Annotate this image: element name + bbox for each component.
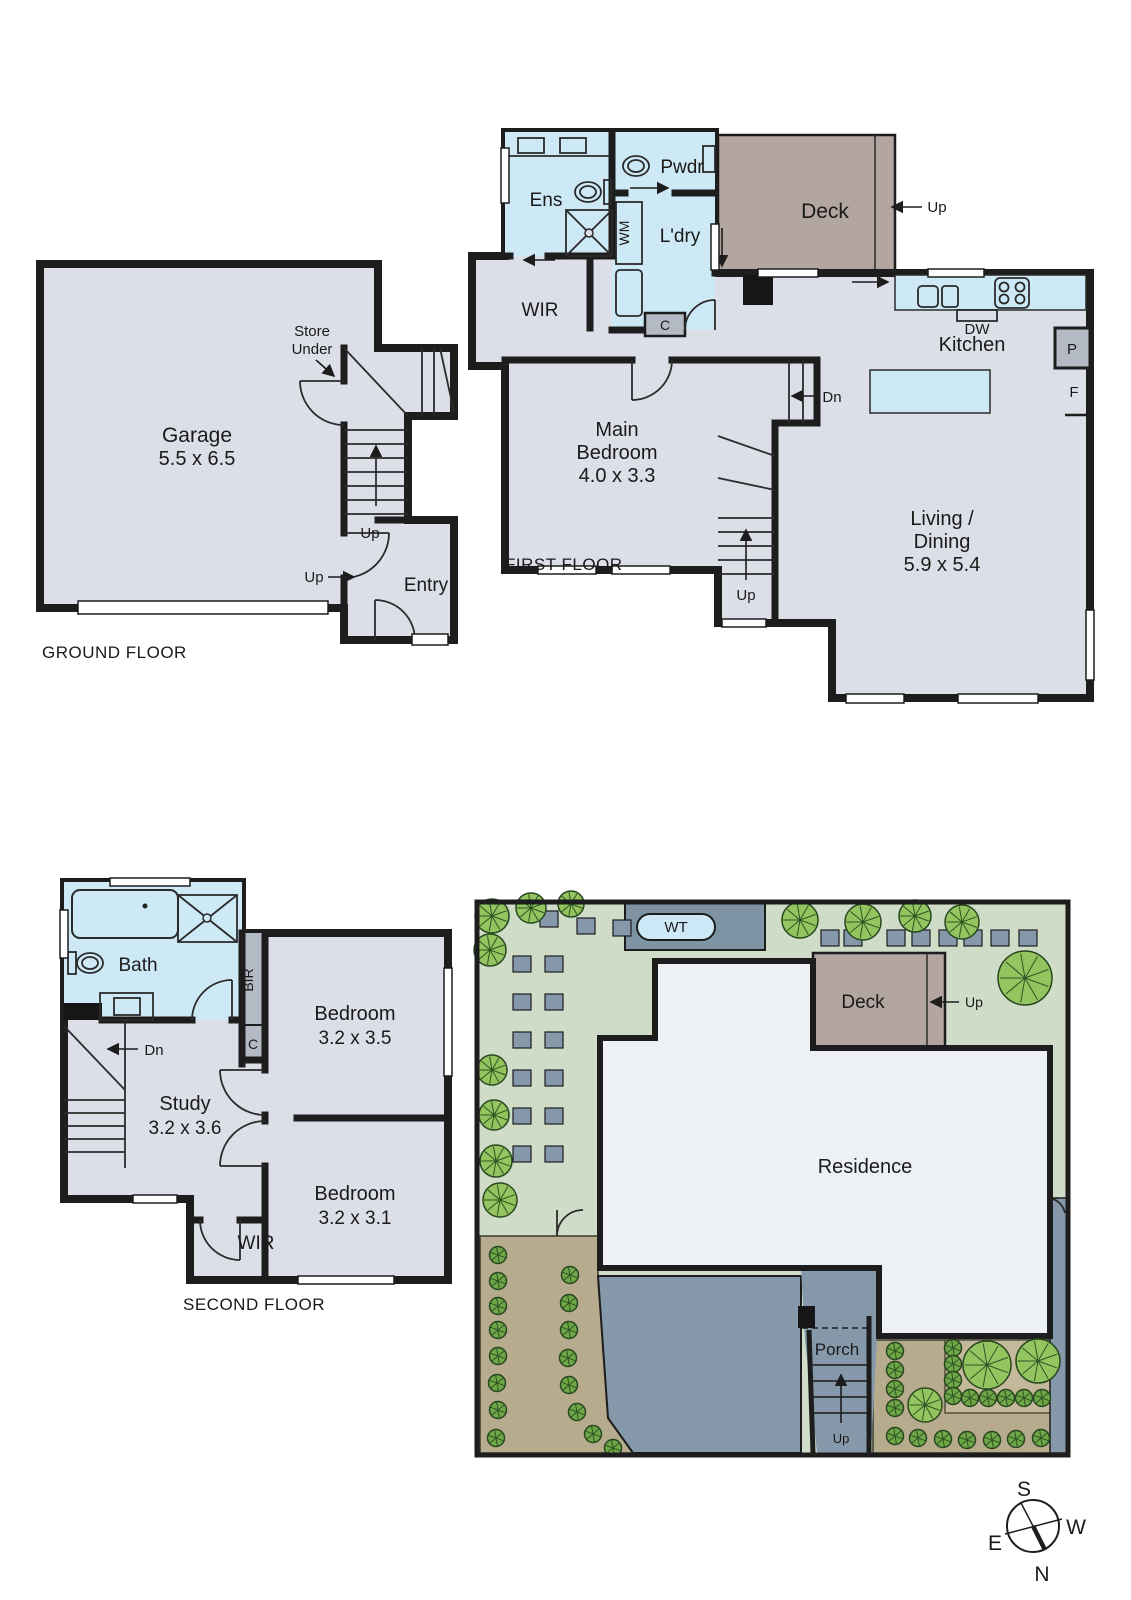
kitchen-bench xyxy=(895,275,1086,310)
bedroom1-label: Bedroom xyxy=(314,1003,395,1025)
porch-up-label: Up xyxy=(833,1431,850,1446)
dw-label: DW xyxy=(965,321,991,338)
bath-window-top xyxy=(110,878,190,886)
living-window-3 xyxy=(958,694,1038,703)
living-line1: Living / xyxy=(910,508,974,530)
main-bedroom-line2: Bedroom xyxy=(576,442,657,464)
wm-label: WM xyxy=(616,221,632,246)
compass-needle-north xyxy=(1033,1526,1045,1550)
porch-label: Porch xyxy=(815,1340,859,1359)
second-dn-label: Dn xyxy=(144,1042,163,1059)
ground-floor-plan: Garage 5.5 x 6.5 Store Under Up Up Entry… xyxy=(30,248,460,668)
ground-floor-title: GROUND FLOOR xyxy=(42,643,187,662)
second-floor-title: SECOND FLOOR xyxy=(183,1295,325,1314)
garage-dims: 5.5 x 6.5 xyxy=(159,448,236,470)
first-floor-title: FIRST FLOOR xyxy=(505,555,623,574)
bedroom1-dims: 3.2 x 3.5 xyxy=(319,1028,392,1049)
second-wall-block xyxy=(64,1003,102,1020)
compass-north: N xyxy=(1034,1563,1049,1586)
first-cupboard-label: C xyxy=(660,317,670,333)
garage-door xyxy=(78,601,328,614)
site-deck-label: Deck xyxy=(841,992,885,1013)
first-deck-up-label: Up xyxy=(927,199,946,216)
living-dims: 5.9 x 5.4 xyxy=(904,554,981,576)
compass-needle-south xyxy=(1021,1503,1033,1526)
living-window-1 xyxy=(722,619,766,627)
second-floor-plan: Bath BIR C Dn Bedroom 3.2 x 3.5 Study 3.… xyxy=(50,868,470,1328)
ground-floor-footprint xyxy=(40,264,454,640)
second-cupboard-label: C xyxy=(248,1036,258,1052)
site-deck-up-label: Up xyxy=(965,994,983,1010)
compass-south: S xyxy=(1017,1478,1031,1501)
first-dn-label: Dn xyxy=(822,389,841,406)
compass-east: E xyxy=(988,1532,1002,1555)
store-under-line2: Under xyxy=(292,341,333,358)
second-wir-label: WIR xyxy=(238,1233,275,1254)
compass-rose: S W E N xyxy=(940,1462,1100,1592)
garage-label: Garage xyxy=(162,424,232,447)
compass-west: W xyxy=(1066,1516,1086,1539)
living-window-4 xyxy=(1086,610,1094,680)
bathtub-drain xyxy=(143,904,148,909)
ens-window xyxy=(501,148,509,203)
bedroom2-window xyxy=(298,1276,394,1284)
deck-wall-window-1 xyxy=(758,269,818,277)
bedroom2-dims: 3.2 x 3.1 xyxy=(319,1208,392,1229)
store-under-line1: Store xyxy=(294,323,330,340)
study-label: Study xyxy=(159,1093,210,1115)
entry-label: Entry xyxy=(404,575,449,596)
bir-label: BIR xyxy=(240,968,256,991)
pwdr-label: Pwdr xyxy=(660,157,704,178)
study-window xyxy=(133,1195,177,1203)
fridge-label: F xyxy=(1069,384,1078,401)
porch-pier xyxy=(798,1306,815,1328)
first-up-label: Up xyxy=(736,587,755,604)
pantry-label: P xyxy=(1067,341,1077,358)
main-bedroom-line1: Main xyxy=(595,419,638,441)
bath-window-left xyxy=(60,910,68,958)
main-bedroom-dims: 4.0 x 3.3 xyxy=(579,465,656,487)
water-tank-label: WT xyxy=(664,919,687,936)
bath-label: Bath xyxy=(118,955,157,976)
residence-label: Residence xyxy=(818,1156,913,1178)
ens-label: Ens xyxy=(530,190,563,211)
site-plan: WT Deck Up Residence Porch Up xyxy=(465,878,1080,1478)
wir-label: WIR xyxy=(522,300,559,321)
first-floor-plan: Ens Pwdr WM L'dry C WIR Deck Up Kitchen … xyxy=(460,118,1100,718)
bedroom2-label: Bedroom xyxy=(314,1183,395,1205)
flue-block xyxy=(743,275,773,305)
front-door-threshold xyxy=(412,634,448,645)
kitchen-island xyxy=(870,370,990,413)
floorplan-sheet: Garage 5.5 x 6.5 Store Under Up Up Entry… xyxy=(0,0,1131,1600)
living-window-2 xyxy=(846,694,904,703)
first-deck-label: Deck xyxy=(801,200,849,223)
bedroom1-window xyxy=(444,968,452,1076)
study-dims: 3.2 x 3.6 xyxy=(149,1118,222,1139)
deck-wall-window-2 xyxy=(928,269,984,277)
ldry-label: L'dry xyxy=(660,226,701,247)
entry-up-label: Up xyxy=(304,569,323,586)
living-line2: Dining xyxy=(914,531,971,553)
ground-stairs-up-label: Up xyxy=(360,525,379,542)
ldry-window xyxy=(711,224,719,270)
driveway xyxy=(598,1276,801,1453)
